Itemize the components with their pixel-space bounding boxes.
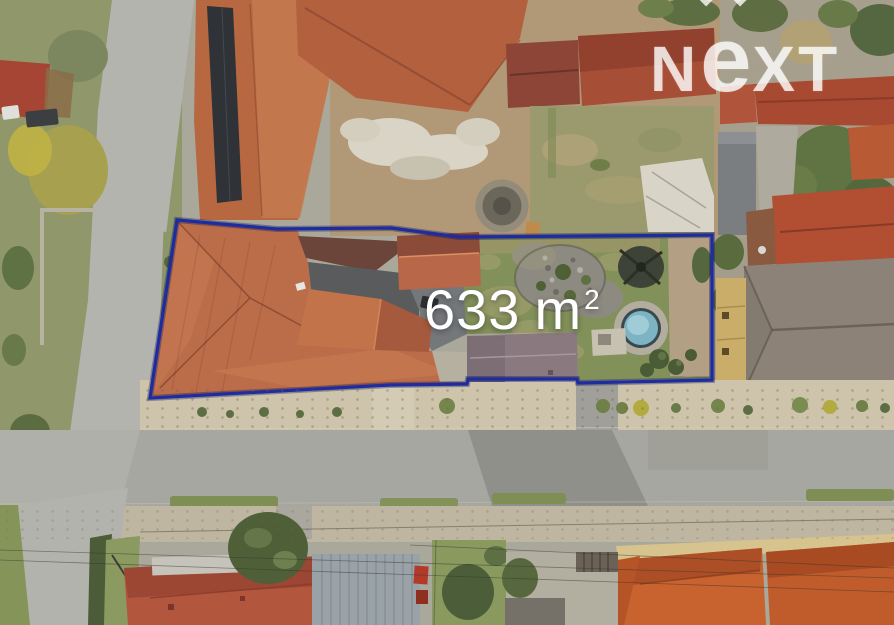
area-value: 633 xyxy=(424,278,520,341)
area-unit: m xyxy=(534,278,582,341)
driveway-crossing-1 xyxy=(372,382,414,432)
orange-roof-far-right xyxy=(848,124,894,180)
white-car xyxy=(1,105,20,120)
brown-shed xyxy=(746,208,776,266)
dark-car xyxy=(25,108,58,127)
dark-roof-small xyxy=(505,598,565,625)
logo-letter-e: e xyxy=(700,9,751,111)
area-exponent: 2 xyxy=(584,284,601,315)
logo-letter-x: X xyxy=(752,29,798,109)
pergola-tree xyxy=(618,246,664,288)
middle-wing-roof xyxy=(297,289,381,350)
satellite-dish xyxy=(758,246,766,254)
logo-letter-e-wrap: e xyxy=(700,20,751,127)
corrugated-roof xyxy=(312,554,420,625)
big-tree xyxy=(228,512,308,584)
aerial-photo: 633m2 N e X T xyxy=(0,0,894,625)
flat-grey-roof xyxy=(152,555,239,576)
logo-letter-n: N xyxy=(650,29,699,109)
far-sidewalk xyxy=(0,506,894,542)
yellow-gable-wall xyxy=(716,278,746,382)
white-tarp xyxy=(640,158,714,232)
area-label: 633m2 xyxy=(424,282,601,338)
next-logo-watermark: N e X T xyxy=(650,20,840,110)
logo-letter-t: T xyxy=(798,29,840,109)
